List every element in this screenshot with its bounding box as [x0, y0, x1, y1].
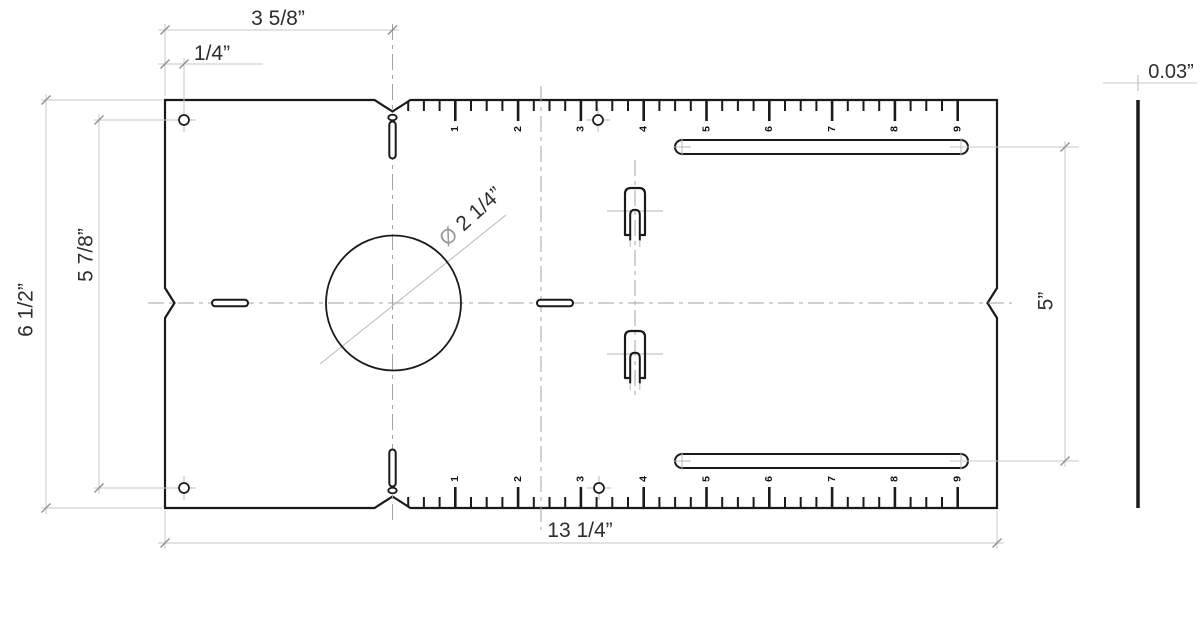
dim-plate-height-text: 6 1/2”	[15, 283, 38, 337]
ruler-number: 1	[449, 126, 461, 132]
bottom-long-slot	[673, 452, 968, 470]
ruler-number: 9	[951, 476, 963, 482]
ruler-number: 5	[700, 476, 712, 482]
dim-plate-height: 6 1/2”	[15, 94, 162, 514]
drawing-canvas: 123456789 123456789 Ø2 1/4”	[0, 0, 1200, 632]
ruler-number: 3	[575, 476, 587, 482]
ruler-number: 4	[637, 476, 649, 482]
dim-plate-width-text: 13 1/4”	[547, 519, 612, 542]
dim-corner-hole-offset: 1/4”	[158, 42, 263, 108]
ruler-number: 9	[951, 126, 963, 132]
ruler-number: 2	[512, 126, 524, 132]
plate-outline	[165, 100, 997, 508]
technical-drawing: 123456789 123456789 Ø2 1/4”	[0, 0, 1200, 632]
ruler-number: 7	[826, 126, 838, 132]
dim-ruler-zero-offset-text: 3 5/8”	[251, 7, 305, 30]
ruler-number: 6	[763, 126, 775, 132]
ruler-number: 6	[763, 476, 775, 482]
ruler-number: 8	[889, 476, 901, 482]
dim-corner-hole-span: 5 7/8”	[75, 114, 177, 494]
dim-corner-hole-span-text: 5 7/8”	[75, 228, 98, 282]
ruler-number: 8	[889, 126, 901, 132]
top-long-slot	[673, 138, 968, 156]
left-center-slot	[212, 300, 248, 307]
dim-plate-width: 13 1/4”	[158, 511, 1004, 549]
ruler-number: 7	[826, 476, 838, 482]
ruler-number: 2	[512, 476, 524, 482]
side-view: 0.03”	[1103, 61, 1197, 508]
ruler-number: 1	[449, 476, 461, 482]
ruler-number: 5	[700, 126, 712, 132]
dim-corner-hole-offset-text: 1/4”	[194, 42, 230, 65]
dim-plate-thickness-text: 0.03”	[1148, 61, 1194, 83]
ruler-number: 4	[637, 126, 649, 132]
dim-slot-span-text: 5”	[1035, 292, 1058, 311]
middle-center-slot	[537, 300, 573, 307]
ruler-number: 3	[575, 126, 587, 132]
